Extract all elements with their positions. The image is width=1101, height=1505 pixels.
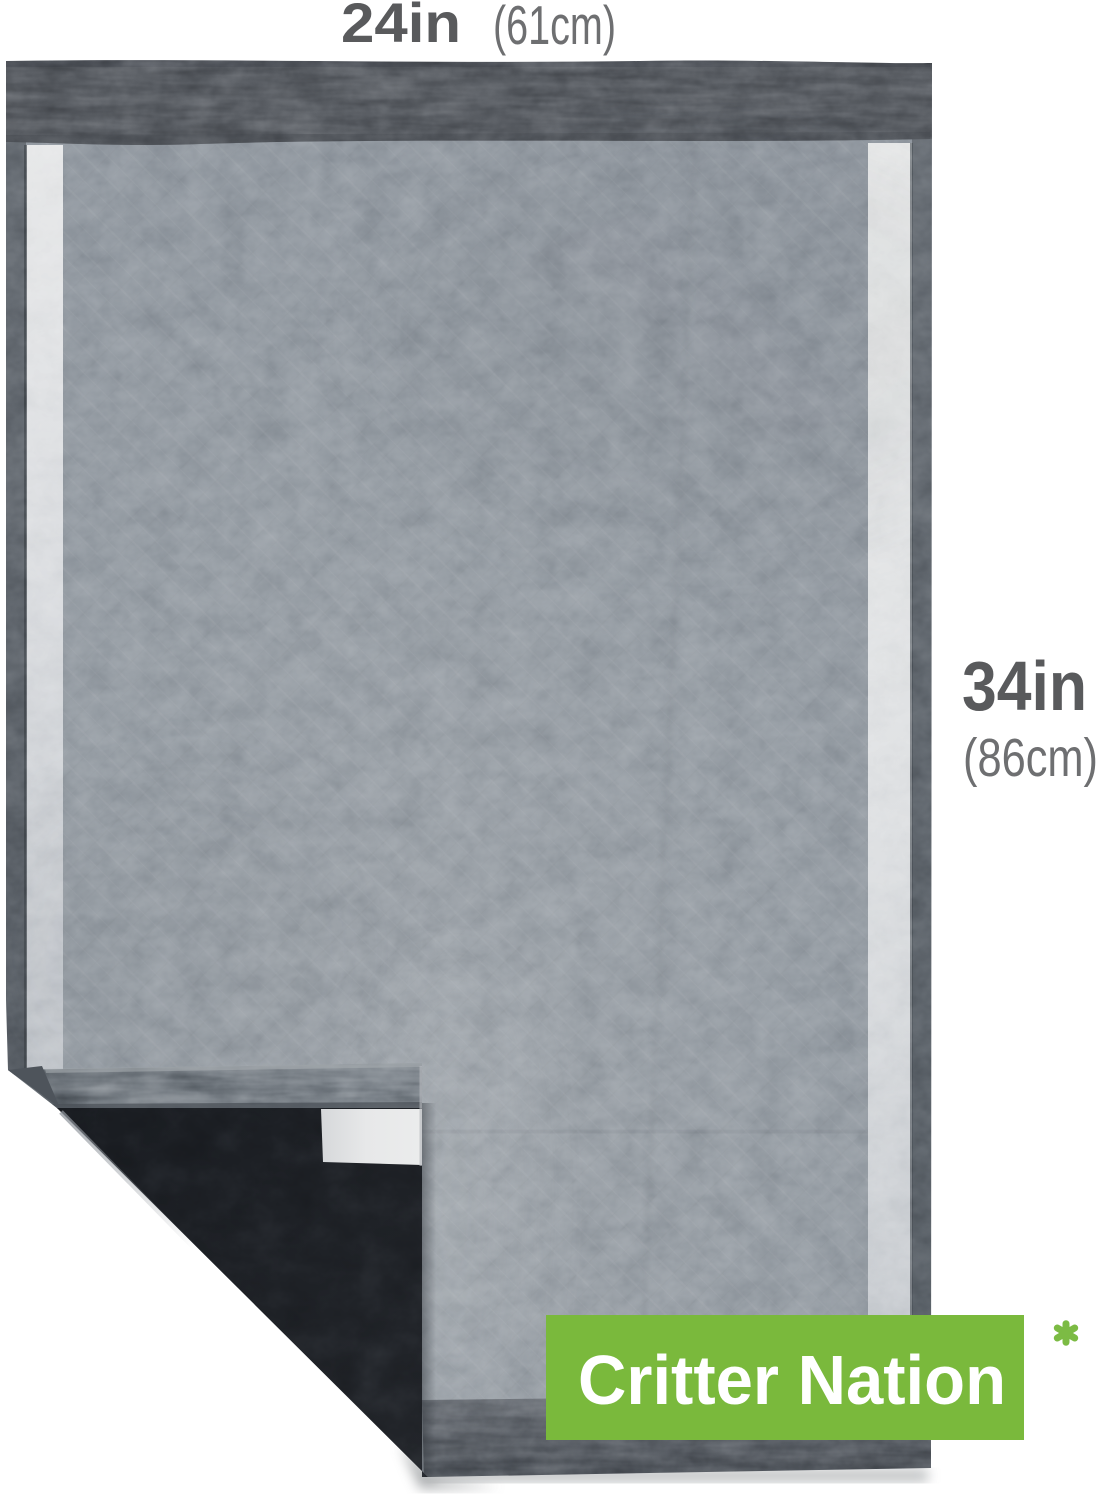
svg-text:(86cm): (86cm) <box>963 728 1098 788</box>
svg-text:24in: 24in <box>341 0 461 54</box>
svg-text:(61cm): (61cm) <box>493 0 616 56</box>
svg-text:Critter Nation: Critter Nation <box>578 1341 1006 1419</box>
svg-text:34in: 34in <box>962 647 1087 725</box>
